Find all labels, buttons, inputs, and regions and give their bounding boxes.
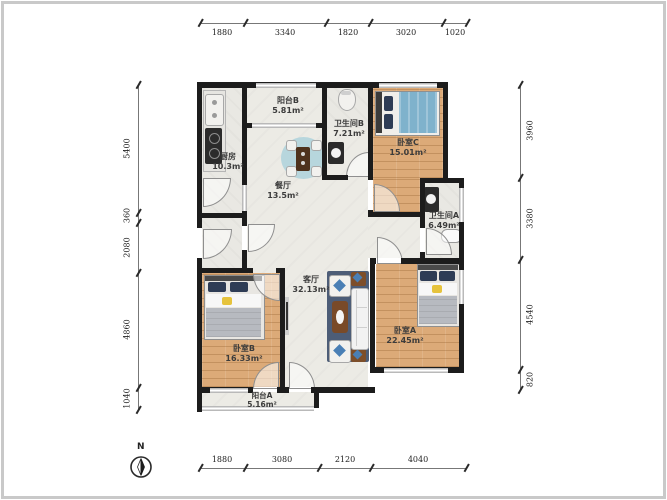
room-label-balcony-b: 阳台B 5.81m² [250, 96, 326, 116]
room-label-bathroom-b: 卫生间B 7.21m² [311, 119, 387, 139]
washbasin-b [328, 142, 344, 164]
room-area: 22.45m² [367, 336, 443, 346]
dim-left-4: 4860 [123, 313, 132, 347]
room-area: 32.13m² [273, 285, 349, 295]
room-label-bedroom-b: 卧室B 16.33m² [206, 344, 282, 364]
room-label-bathroom-a: 卫生间A 6.49m² [406, 211, 482, 231]
kitchen-sink [205, 94, 224, 126]
wall [242, 218, 247, 226]
room-name: 客厅 [273, 275, 349, 285]
window [459, 270, 464, 304]
pillow [439, 271, 455, 281]
compass-north-label: N [137, 442, 145, 452]
window [256, 83, 316, 88]
pillow [420, 271, 437, 281]
bed-a [417, 264, 461, 327]
sofa-seam [356, 290, 357, 346]
dim-right-4: 820 [526, 363, 535, 397]
room-name: 卧室B [206, 344, 282, 354]
room-name: 卧室C [370, 138, 446, 148]
headboard [418, 265, 458, 270]
armchair [329, 340, 351, 363]
floor-plan-canvas: 厨房 10.3m² 阳台B 5.81m² 卫生间B 7.21m² 卧室C 15.… [0, 0, 667, 500]
dim-right-1: 3960 [526, 114, 535, 148]
dim-bottom-1: 1880 [202, 455, 242, 464]
accent-pillow [222, 297, 232, 305]
dim-top-4: 3020 [386, 28, 426, 37]
washbasin-a [424, 187, 439, 212]
wall [322, 175, 348, 180]
dim-tick [136, 406, 142, 415]
dining-chair [311, 166, 322, 177]
cushion-icon [333, 344, 346, 357]
dim-bottom-4: 4040 [398, 455, 438, 464]
dimension-line-left [138, 85, 139, 410]
dim-tick [518, 386, 524, 395]
blanket [399, 92, 437, 133]
room-name: 厨房 [190, 152, 266, 162]
wall [420, 178, 464, 183]
pillow [208, 282, 226, 292]
dim-left-5: 1040 [123, 382, 132, 416]
window [379, 83, 437, 88]
room-area: 16.33m² [206, 354, 282, 364]
sink-basin-icon [212, 100, 217, 105]
room-area: 13.5m² [245, 191, 321, 201]
blanket [419, 296, 457, 324]
room-name: 餐厅 [245, 181, 321, 191]
room-name: 阳台B [250, 96, 326, 106]
room-name: 卫生间A [406, 211, 482, 221]
compass-icon [129, 455, 153, 479]
room-label-kitchen: 厨房 10.3m² [190, 152, 266, 172]
basin-icon [426, 194, 436, 204]
sofa-seam [357, 327, 367, 328]
dim-bottom-2: 3080 [262, 455, 302, 464]
wall [370, 258, 375, 367]
dim-top-3: 1820 [328, 28, 368, 37]
tv-icon [286, 302, 288, 330]
dim-top-2: 3340 [265, 28, 305, 37]
room-name: 卫生间B [311, 119, 387, 129]
pillow [230, 282, 248, 292]
dimension-line-top [200, 23, 467, 24]
tableware-icon [301, 152, 305, 156]
wall [314, 392, 319, 408]
tray-icon [336, 310, 344, 324]
coffee-table [332, 301, 348, 333]
dim-bottom-3: 2120 [325, 455, 365, 464]
dim-left-1: 5400 [123, 132, 132, 166]
blanket [206, 308, 261, 337]
balcony-rail-window [252, 123, 316, 128]
room-label-dining: 餐厅 13.5m² [245, 181, 321, 201]
room-label-bedroom-a: 卧室A 22.45m² [367, 326, 443, 346]
side-table [351, 272, 366, 286]
window [384, 368, 448, 373]
room-area: 5.16m² [224, 401, 300, 410]
room-label-balcony-a: 阳台A 5.16m² [224, 392, 300, 409]
accent-pillow [432, 285, 442, 293]
wall [197, 213, 247, 218]
dim-top-1: 1880 [202, 28, 242, 37]
dining-table [296, 147, 310, 171]
wall [401, 258, 464, 264]
room-area: 10.3m² [190, 162, 266, 172]
tableware-icon [301, 161, 305, 165]
dim-left-3: 2080 [123, 231, 132, 265]
room-label-bedroom-c: 卧室C 15.01m² [370, 138, 446, 158]
pillow [384, 96, 393, 111]
burner-icon [209, 133, 220, 144]
dining-chair [311, 140, 322, 151]
dim-right-2: 3380 [526, 202, 535, 236]
dimension-line-right [520, 85, 521, 390]
bed-sheet [206, 294, 261, 307]
wall [311, 387, 375, 393]
dimension-line-bottom [200, 468, 466, 469]
sofa-seam [357, 307, 367, 308]
toilet-tank [341, 91, 351, 95]
room-area: 5.81m² [250, 106, 326, 116]
basin-icon [331, 148, 341, 158]
room-name: 卧室A [367, 326, 443, 336]
dim-right-3: 4540 [526, 298, 535, 332]
room-area: 15.01m² [370, 148, 446, 158]
room-label-living: 客厅 32.13m² [273, 275, 349, 295]
plant-icon [353, 273, 363, 283]
dim-left-2: 360 [123, 199, 132, 233]
plant-icon [353, 350, 363, 360]
wall [197, 268, 253, 273]
dim-top-5: 1020 [435, 28, 475, 37]
toilet-icon [338, 89, 356, 111]
sink-basin-icon [212, 113, 217, 118]
side-table [351, 349, 366, 362]
wall [443, 88, 448, 182]
room-area: 6.49m² [406, 221, 482, 231]
